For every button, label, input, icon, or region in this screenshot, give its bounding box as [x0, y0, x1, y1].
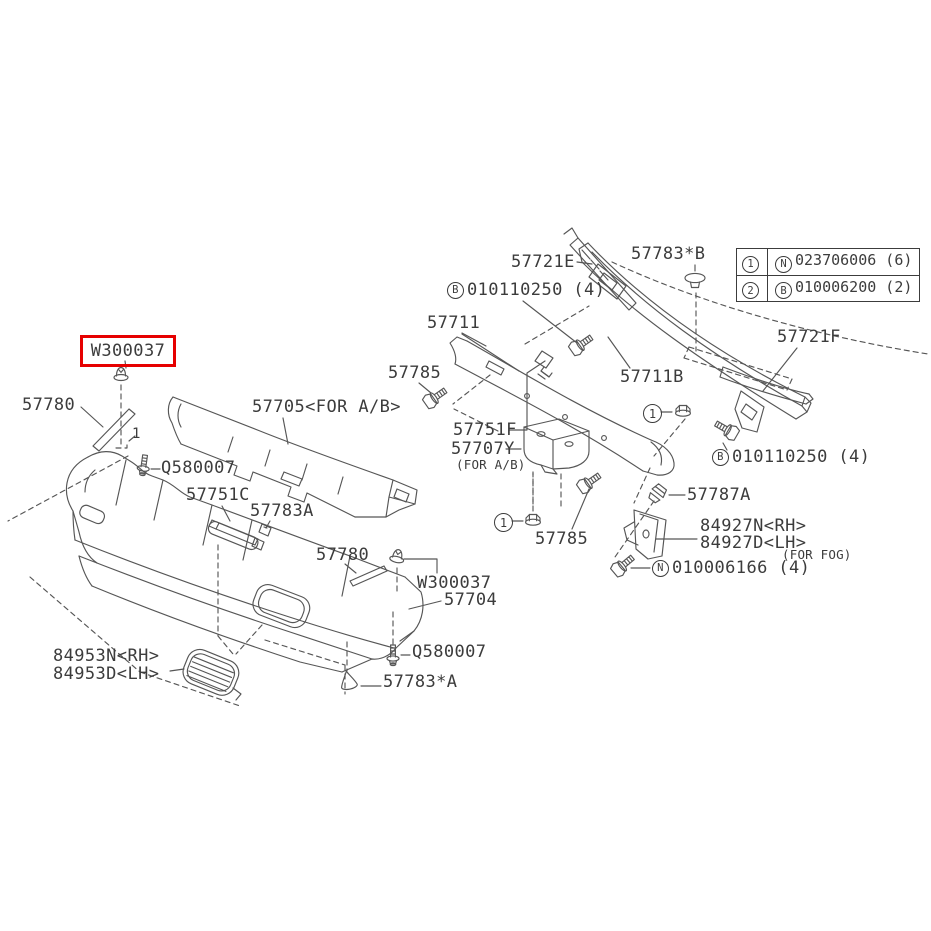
clip-icon	[389, 548, 405, 564]
part-label-q580007-top[interactable]: Q580007	[161, 460, 235, 477]
part-label-010006166[interactable]: N 010006166 (4)	[652, 560, 810, 577]
part-label-57707y-note: (FOR A/B)	[456, 459, 526, 472]
part-label-010110250-top[interactable]: B 010110250 (4)	[447, 282, 605, 299]
mushroom-clip-icon	[685, 273, 705, 287]
part-label-57721e[interactable]: 57721E	[511, 254, 575, 271]
nut-icon	[526, 515, 541, 526]
fastener-legend: 1 N023706006 (6) 2 B010006200 (2)	[736, 248, 920, 302]
part-label-57711[interactable]: 57711	[427, 315, 480, 332]
bolt-icon	[712, 417, 740, 442]
absorber-57707y-drawing	[524, 419, 589, 474]
part-label-57785-left[interactable]: 57785	[388, 365, 441, 382]
screw-icon	[136, 454, 151, 476]
callout-1-beam: 1	[643, 404, 662, 423]
selected-part-highlight: W300037	[80, 335, 176, 367]
bolt-icon	[567, 331, 595, 357]
circled-2-icon: 2	[742, 282, 759, 299]
part-label-57780-mid[interactable]: 57780	[316, 547, 369, 564]
nut-icon	[676, 406, 691, 417]
callout-1-absorber: 1	[494, 513, 513, 532]
part-label-w300037-top[interactable]: W300037	[91, 343, 165, 360]
legend-row: 2 B010006200 (2)	[737, 275, 920, 302]
parts-diagram: W300037 57721E 57783*B B 010110250 (4) 5…	[0, 0, 931, 931]
part-label-57751f[interactable]: 57751F	[453, 422, 517, 439]
circled-b-icon: B	[775, 282, 792, 299]
part-label-57721f[interactable]: 57721F	[777, 329, 841, 346]
legend-part-number: 023706006 (6)	[795, 251, 912, 269]
callout-1-bumper: 1	[132, 427, 141, 441]
part-label-84953d-lh[interactable]: 84953D<LH>	[53, 666, 159, 683]
part-label-57783b[interactable]: 57783*B	[631, 246, 705, 263]
strip-57780-mid-drawing	[350, 566, 387, 586]
part-label-57785-mid[interactable]: 57785	[535, 531, 588, 548]
part-label-010110250-right[interactable]: B 010110250 (4)	[712, 449, 870, 466]
clip-icon	[114, 368, 128, 381]
cone-clip-icon	[338, 670, 357, 691]
part-label-57705[interactable]: 57705<FOR A/B>	[252, 399, 401, 416]
legend-part-number: 010006200 (2)	[795, 278, 912, 296]
part-label-84953n-rh[interactable]: 84953N<RH>	[53, 648, 159, 665]
part-label-57787a[interactable]: 57787A	[687, 487, 751, 504]
part-label-57711b[interactable]: 57711B	[620, 369, 684, 386]
part-label-q580007-bottom[interactable]: Q580007	[412, 644, 486, 661]
circled-n-icon: N	[775, 256, 792, 273]
circled-b-icon: B	[712, 449, 729, 466]
bolt-icon	[575, 469, 603, 495]
grommet-icon	[647, 483, 668, 505]
part-label-57783a-star[interactable]: 57783*A	[383, 674, 457, 691]
part-label-57780-left[interactable]: 57780	[22, 397, 75, 414]
part-label-57751c[interactable]: 57751C	[186, 487, 250, 504]
legend-row: 1 N023706006 (6)	[737, 249, 920, 276]
circled-1-icon: 1	[742, 256, 759, 273]
part-label-57704[interactable]: 57704	[444, 592, 497, 609]
part-label-57707y[interactable]: 57707Y	[451, 441, 515, 458]
fastener-icons	[114, 273, 741, 690]
bolt-icon	[609, 552, 637, 579]
part-label-57783a[interactable]: 57783A	[250, 503, 314, 520]
circled-b-icon: B	[447, 282, 464, 299]
stud-icon	[535, 351, 553, 379]
strip-57780-left-drawing	[93, 409, 135, 451]
circled-n-icon: N	[652, 560, 669, 577]
